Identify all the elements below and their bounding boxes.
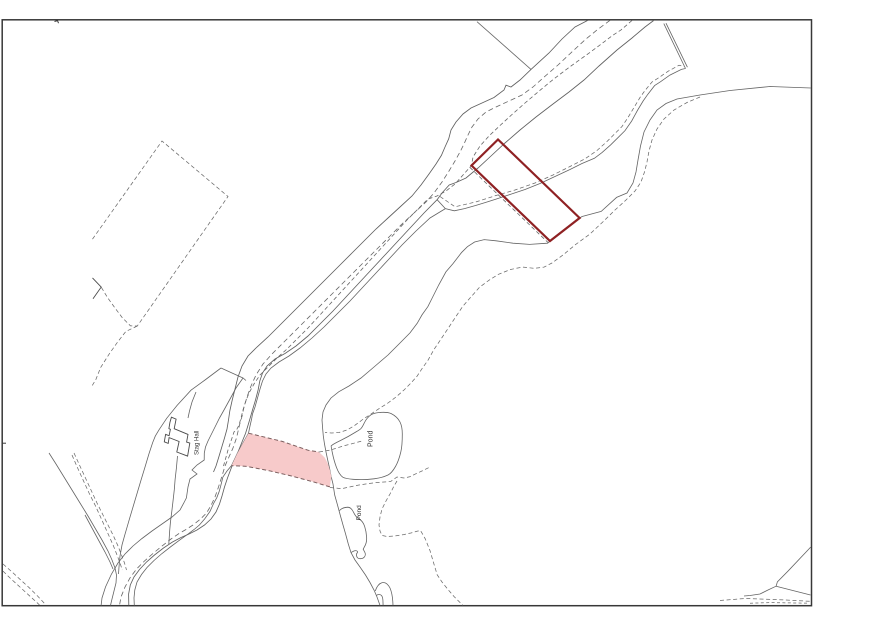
svg-text:Pond: Pond [368,431,375,447]
svg-text:Stag Hall: Stag Hall [195,431,201,455]
svg-text:Pond: Pond [356,505,363,521]
